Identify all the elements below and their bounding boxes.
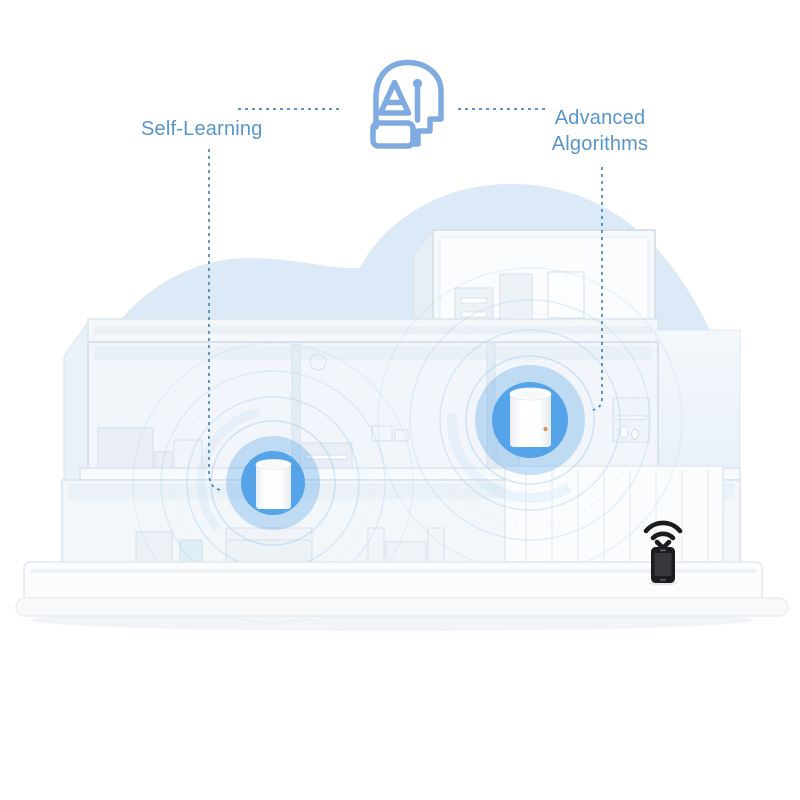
furniture-shape xyxy=(461,298,487,303)
second-floor-backwall xyxy=(94,346,652,360)
roof-slab-inner xyxy=(94,326,652,334)
label-self-learning: Self-Learning xyxy=(141,116,281,142)
mesh-wifi-unit-right xyxy=(475,365,585,475)
unit-cylinder-top-inner xyxy=(261,461,287,468)
scene-svg xyxy=(0,0,800,800)
phone-screen xyxy=(655,553,672,576)
furniture-shape xyxy=(98,428,153,468)
scene-stage: Self-Learning Advanced Algorithms xyxy=(0,0,800,800)
smartphone-icon xyxy=(651,547,675,583)
jaw-block xyxy=(373,123,413,146)
furniture-shape xyxy=(372,426,392,441)
unit-led xyxy=(544,427,548,431)
phone-speaker xyxy=(660,550,666,552)
furniture-shape xyxy=(548,272,584,318)
unit-cylinder-top-inner xyxy=(516,390,546,398)
label-advanced-line1: Advanced xyxy=(555,105,646,131)
label-advanced-algorithms: Advanced Algorithms xyxy=(525,105,675,157)
platform-lip xyxy=(16,598,788,616)
furniture-shape xyxy=(620,426,628,438)
right-wall xyxy=(656,330,740,470)
platform-edge-line xyxy=(30,569,756,573)
phone-home-button xyxy=(660,579,666,581)
ai-head-icon xyxy=(373,63,441,147)
label-advanced-line2: Algorithms xyxy=(552,131,648,157)
mesh-wifi-unit-left xyxy=(226,436,320,530)
letter-a xyxy=(381,83,409,114)
furniture-shape xyxy=(174,440,202,468)
